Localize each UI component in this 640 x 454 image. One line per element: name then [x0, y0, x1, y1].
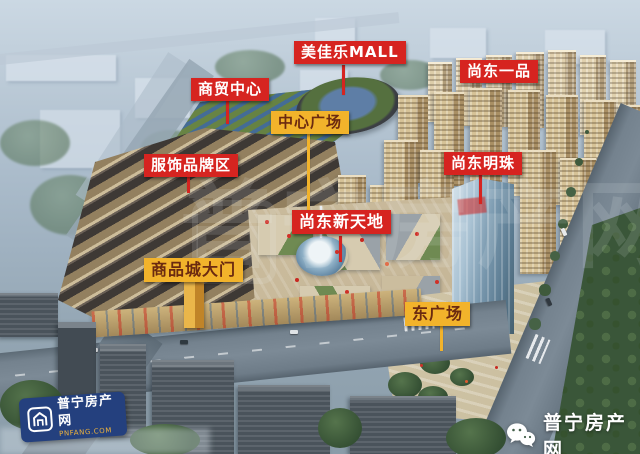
pointer-line-mall [342, 65, 345, 95]
pointer-line-clothing-zone [187, 176, 190, 193]
label-trade-center: 商贸中心 [191, 78, 269, 101]
commodity-city-gate-structure [184, 282, 204, 328]
pnfang-banner-name: 普宁房产网 [57, 393, 120, 430]
pointer-line-central-plaza [307, 132, 310, 212]
label-meijiale-mall: 美佳乐MALL [294, 41, 406, 64]
wechat-watermark: 普宁房产网 [506, 408, 640, 454]
pointer-line-trade-center [226, 100, 229, 124]
foreground-building [0, 293, 58, 337]
plaza-tree [388, 372, 422, 398]
wechat-icon [506, 422, 536, 448]
wechat-watermark-name: 普宁房产网 [543, 408, 640, 454]
pnfang-logo-icon [26, 405, 54, 433]
foreground-trees [318, 408, 362, 448]
label-shangdong-yipin: 尚东一品 [460, 60, 538, 83]
label-commodity-city-gate: 商品城大门 [144, 258, 243, 282]
aerial-master-plan-rendering: 普宁房产网 美佳乐MALL 商贸中心 中心广场 尚东一品 服饰品牌区 尚东明珠 … [0, 0, 640, 454]
tower [520, 150, 556, 274]
label-clothing-brand-zone: 服饰品牌区 [144, 154, 238, 177]
pointer-line-xintiandi [339, 236, 342, 262]
label-shangdong-mingzhu: 尚东明珠 [444, 152, 522, 175]
plaza-tree [450, 368, 474, 386]
roof-garden-block [386, 214, 440, 260]
foreground-trees [446, 418, 506, 454]
pointer-line-east-plaza [440, 325, 443, 351]
foreground-building [350, 396, 456, 454]
foreground-building [238, 385, 330, 454]
label-shangdong-xintiandi: 尚东新天地 [292, 210, 391, 234]
roadside-trees [585, 130, 589, 134]
pointer-line-mingzhu [479, 174, 482, 204]
label-east-plaza: 东广场 [405, 302, 470, 326]
vehicle [290, 330, 298, 334]
label-central-plaza: 中心广场 [271, 111, 349, 134]
vehicle [180, 340, 188, 344]
glass-tower-red-sign [457, 197, 487, 216]
pnfang-watermark-banner: 普宁房产网 PNFANG.COM [19, 391, 128, 442]
